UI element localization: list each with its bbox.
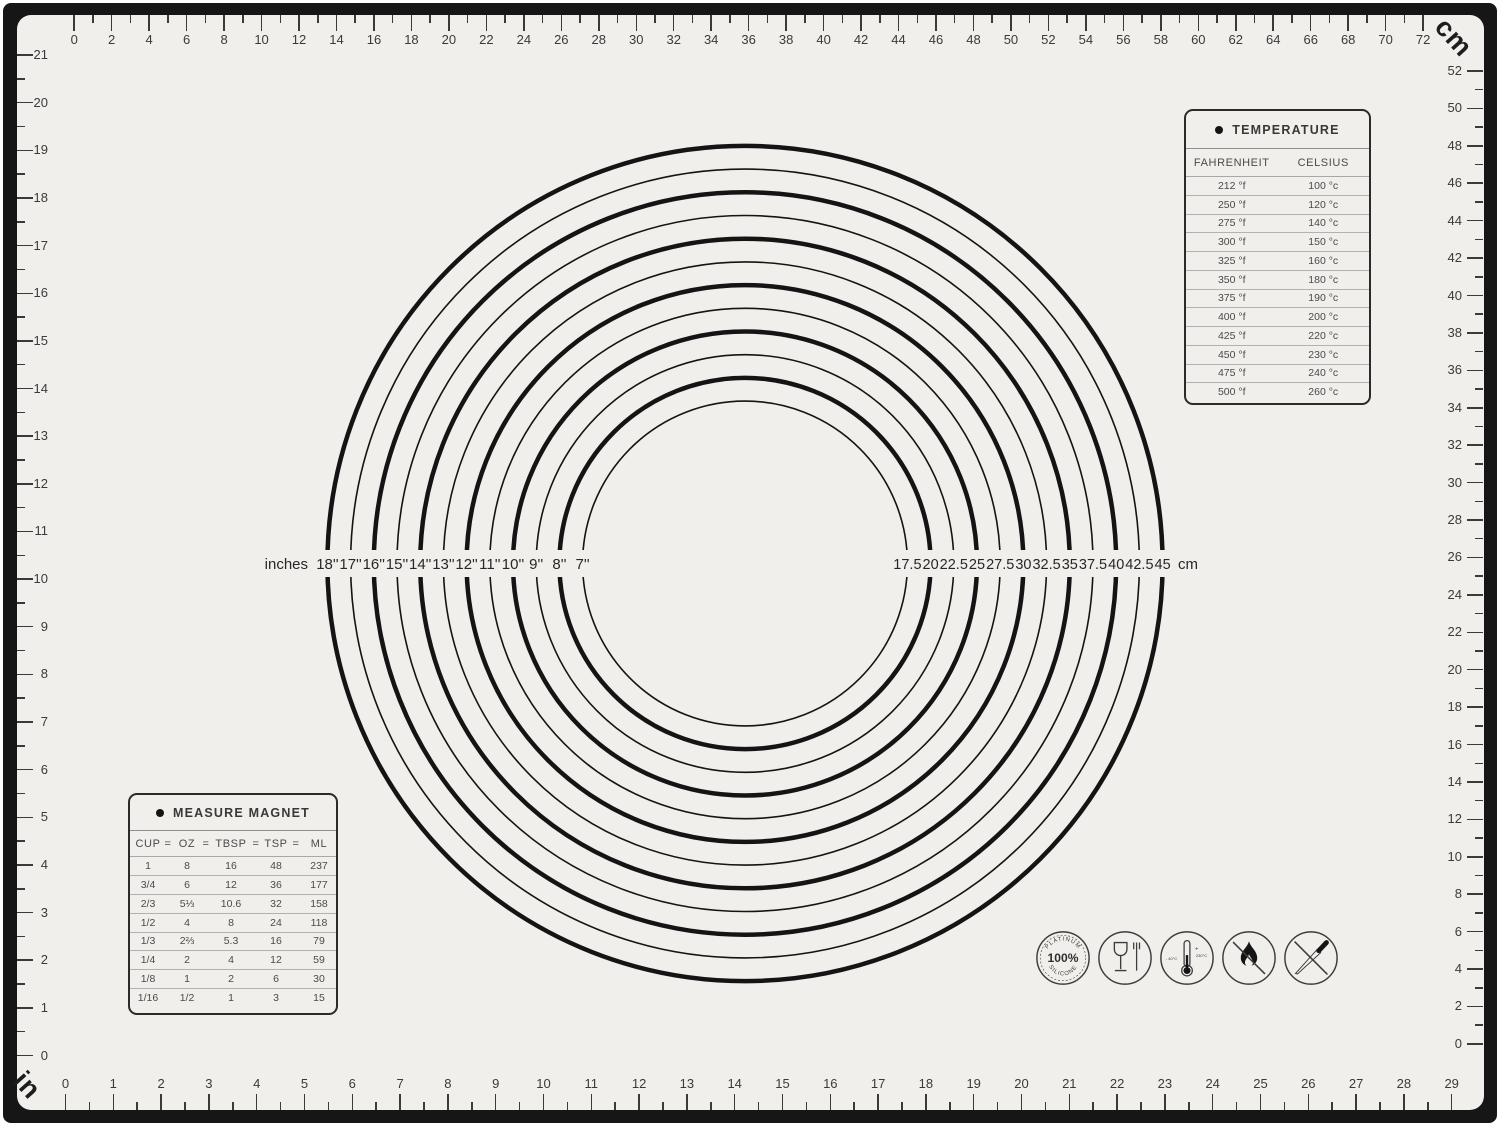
ruler-tick bbox=[561, 15, 563, 31]
ruler-tick bbox=[89, 1102, 91, 1110]
ruler-tick bbox=[17, 983, 25, 985]
ruler-label: 16 bbox=[1432, 738, 1462, 752]
ruler-label: 8 bbox=[1432, 887, 1462, 901]
ruler-tick bbox=[399, 1094, 401, 1110]
measure-cell: 3/4 bbox=[132, 879, 164, 891]
temperature-cell: 375 °f bbox=[1186, 292, 1278, 304]
ruler-tick bbox=[1475, 501, 1483, 503]
ring-inch-label: 11'' bbox=[479, 556, 500, 573]
ruler-tick bbox=[17, 793, 25, 795]
ring-inch-label: 15'' bbox=[386, 556, 409, 573]
ruler-tick bbox=[598, 15, 600, 31]
ruler-label: 8 bbox=[210, 33, 238, 47]
measure-cell: 2⅔ bbox=[172, 935, 202, 947]
ring-inch-label: 13'' bbox=[432, 556, 455, 573]
temperature-row: 250 °f120 °c bbox=[1186, 196, 1369, 215]
ruler-tick bbox=[1475, 875, 1483, 877]
ruler-tick bbox=[1235, 15, 1237, 31]
measure-cell: 1/8 bbox=[132, 973, 164, 985]
ruler-tick bbox=[1160, 15, 1162, 31]
measure-cell: 1/4 bbox=[132, 954, 164, 966]
measure-row: 2/35⅓10.632158 bbox=[130, 895, 336, 914]
ruler-tick bbox=[1475, 613, 1483, 615]
ruler-tick bbox=[336, 15, 338, 31]
ruler-label: 18 bbox=[397, 33, 425, 47]
ruler-tick bbox=[1475, 351, 1483, 353]
ruler-label: 12 bbox=[625, 1077, 653, 1091]
ruler-tick bbox=[504, 15, 506, 23]
ruler-tick bbox=[1104, 15, 1106, 23]
svg-text:+: + bbox=[1195, 946, 1199, 952]
measure-cell: 12 bbox=[210, 879, 252, 891]
temperature-cell: 120 °c bbox=[1278, 199, 1370, 211]
ruler-tick bbox=[543, 1094, 545, 1110]
ruler-label: 38 bbox=[772, 33, 800, 47]
ruler-tick bbox=[280, 15, 282, 23]
ruler-tick bbox=[519, 1102, 521, 1110]
certification-icons: PLATINUM 100% SILICONE - 40°C + 230°C bbox=[1034, 929, 1340, 987]
ruler-tick bbox=[785, 15, 787, 31]
ruler-tick bbox=[17, 888, 25, 890]
ruler-tick bbox=[232, 1102, 234, 1110]
ruler-tick bbox=[17, 840, 25, 842]
ruler-tick bbox=[17, 269, 25, 271]
ruler-tick bbox=[1467, 893, 1483, 895]
ruler-label: 70 bbox=[1372, 33, 1400, 47]
measure-cell: 15 bbox=[300, 992, 338, 1004]
ruler-tick bbox=[1116, 1094, 1118, 1110]
ruler-label: 8 bbox=[434, 1077, 462, 1091]
ruler-tick bbox=[1366, 15, 1368, 23]
ruler-label: 40 bbox=[810, 33, 838, 47]
ruler-label: 64 bbox=[1259, 33, 1287, 47]
ruler-label: 12 bbox=[285, 33, 313, 47]
temperature-row: 350 °f180 °c bbox=[1186, 271, 1369, 290]
ring-inch-label: 9'' bbox=[529, 556, 543, 573]
ruler-label: 20 bbox=[20, 96, 48, 110]
ruler-tick bbox=[925, 1094, 927, 1110]
temperature-cell: 500 °f bbox=[1186, 386, 1278, 398]
ruler-label: 52 bbox=[1432, 64, 1462, 78]
ruler-tick bbox=[317, 15, 319, 23]
ruler-label: 10 bbox=[530, 1077, 558, 1091]
ruler-tick bbox=[1467, 632, 1483, 634]
measure-row: 1/4241259 bbox=[130, 951, 336, 970]
ruler-tick bbox=[17, 173, 25, 175]
measure-row: 3/461236177 bbox=[130, 876, 336, 895]
measure-cell: 2 bbox=[172, 954, 202, 966]
no-open-flame-icon bbox=[1220, 929, 1278, 987]
ruler-tick bbox=[1475, 950, 1483, 952]
measure-cell: 48 bbox=[260, 860, 292, 872]
ruler-tick bbox=[1467, 407, 1483, 409]
svg-text:230°C: 230°C bbox=[1196, 953, 1207, 958]
ring-inch-label: 17'' bbox=[339, 556, 362, 573]
ruler-tick bbox=[748, 15, 750, 31]
temperature-cell: 230 °c bbox=[1278, 349, 1370, 361]
measure-column-header: OZ bbox=[172, 838, 202, 850]
ruler-tick bbox=[1085, 15, 1087, 31]
ruler-label: 22 bbox=[472, 33, 500, 47]
ruler-label: 18 bbox=[912, 1077, 940, 1091]
ruler-tick bbox=[1467, 669, 1483, 671]
ruler-tick bbox=[710, 15, 712, 31]
ruler-tick bbox=[782, 1094, 784, 1110]
temperature-table: TEMPERATURE FAHRENHEITCELSIUS 212 °f100 … bbox=[1184, 109, 1371, 405]
ruler-tick bbox=[1467, 931, 1483, 933]
ruler-label: 44 bbox=[885, 33, 913, 47]
ruler-label: 6 bbox=[173, 33, 201, 47]
measure-cell: 36 bbox=[260, 879, 292, 891]
ruler-tick bbox=[17, 650, 25, 652]
measure-column-header: = bbox=[202, 838, 210, 850]
ruler-label: 0 bbox=[60, 33, 88, 47]
ruler-label: 14 bbox=[721, 1077, 749, 1091]
ruler-label: 52 bbox=[1034, 33, 1062, 47]
ruler-tick bbox=[17, 221, 25, 223]
ruler-tick bbox=[17, 555, 25, 557]
ruler-tick bbox=[1021, 1094, 1023, 1110]
ruler-tick bbox=[1467, 370, 1483, 372]
ruler-label: 15 bbox=[20, 334, 48, 348]
ruler-label: 38 bbox=[1432, 326, 1462, 340]
ruler-tick bbox=[17, 412, 25, 414]
ruler-tick bbox=[148, 15, 150, 31]
temperature-cell: 250 °f bbox=[1186, 199, 1278, 211]
ruler-tick bbox=[654, 15, 656, 23]
ruler-label: 68 bbox=[1334, 33, 1362, 47]
ring-inch-label: 18'' bbox=[316, 556, 339, 573]
measure-row: 1/812630 bbox=[130, 970, 336, 989]
measure-row: 1/161/21315 bbox=[130, 989, 336, 1007]
ruler-tick bbox=[1291, 15, 1293, 23]
ruler-label: 26 bbox=[547, 33, 575, 47]
ruler-tick bbox=[1236, 1102, 1238, 1110]
ruler-tick bbox=[17, 602, 25, 604]
baking-mat-image: inches18''4517''42.516''4015''37.514''35… bbox=[0, 0, 1500, 1126]
ring-cm-label: 42.5 bbox=[1125, 557, 1153, 573]
measure-cell: 24 bbox=[260, 917, 292, 929]
temperature-cell: 425 °f bbox=[1186, 330, 1278, 342]
measure-cell: 6 bbox=[172, 879, 202, 891]
ruler-tick bbox=[1475, 837, 1483, 839]
ruler-tick bbox=[567, 1102, 569, 1110]
measure-cell: 1 bbox=[172, 973, 202, 985]
ruler-label: 48 bbox=[959, 33, 987, 47]
ruler-tick bbox=[17, 507, 25, 509]
measure-cell: 6 bbox=[260, 973, 292, 985]
ruler-label: 25 bbox=[1247, 1077, 1275, 1091]
ruler-label: 16 bbox=[360, 33, 388, 47]
ruler-tick bbox=[823, 15, 825, 31]
measure-cell: 59 bbox=[300, 954, 338, 966]
ruler-tick bbox=[1475, 538, 1483, 540]
ruler-tick bbox=[1467, 444, 1483, 446]
ruler-tick bbox=[1212, 1094, 1214, 1110]
ruler-tick bbox=[1467, 295, 1483, 297]
ruler-tick bbox=[1467, 519, 1483, 521]
ruler-label: 4 bbox=[135, 33, 163, 47]
ruler-tick bbox=[1164, 1094, 1166, 1110]
ruler-tick bbox=[184, 1102, 186, 1110]
temperature-row: 425 °f220 °c bbox=[1186, 327, 1369, 346]
ruler-tick bbox=[1092, 1102, 1094, 1110]
ruler-label: 12 bbox=[20, 477, 48, 491]
measure-column-header: ML bbox=[300, 838, 338, 850]
measure-cell: 1 bbox=[132, 860, 164, 872]
ruler-label: 28 bbox=[585, 33, 613, 47]
ruler-tick bbox=[879, 15, 881, 23]
temperature-range-icon: - 40°C + 230°C bbox=[1158, 929, 1216, 987]
ruler-tick bbox=[734, 1094, 736, 1110]
svg-text:- 40°C: - 40°C bbox=[1166, 956, 1178, 961]
ruler-tick bbox=[1427, 1102, 1429, 1110]
ruler-label: 20 bbox=[435, 33, 463, 47]
ruler-tick bbox=[710, 1102, 712, 1110]
ruler-tick bbox=[579, 15, 581, 23]
ruler-label: 6 bbox=[338, 1077, 366, 1091]
ruler-label: 10 bbox=[248, 33, 276, 47]
ruler-label: 46 bbox=[1432, 176, 1462, 190]
ruler-tick bbox=[1140, 1102, 1142, 1110]
ring-cm-label: 45 bbox=[1155, 557, 1171, 573]
ruler-label: 22 bbox=[1103, 1077, 1131, 1091]
ruler-tick bbox=[1475, 763, 1483, 765]
measure-cell: 10.6 bbox=[210, 898, 252, 910]
measure-cell: 5.3 bbox=[210, 935, 252, 947]
ruler-tick bbox=[636, 15, 638, 31]
svg-text:PLATINUM: PLATINUM bbox=[1044, 937, 1081, 951]
ruler-tick bbox=[447, 1094, 449, 1110]
ring-inch-label: 16'' bbox=[363, 556, 386, 573]
ruler-tick bbox=[1403, 1094, 1405, 1110]
ruler-tick bbox=[1467, 557, 1483, 559]
ruler-tick bbox=[328, 1102, 330, 1110]
ruler-label: 18 bbox=[1432, 700, 1462, 714]
ruler-tick bbox=[448, 15, 450, 31]
ruler-tick bbox=[208, 1094, 210, 1110]
ruler-tick bbox=[758, 1102, 760, 1110]
ruler-label: 32 bbox=[1432, 438, 1462, 452]
temperature-cell: 400 °f bbox=[1186, 311, 1278, 323]
ruler-tick bbox=[186, 15, 188, 31]
ruler-label: 2 bbox=[1432, 999, 1462, 1013]
ruler-tick bbox=[111, 15, 113, 31]
ruler-tick bbox=[392, 15, 394, 23]
ruler-tick bbox=[729, 15, 731, 23]
temperature-column-header: CELSIUS bbox=[1278, 157, 1370, 169]
ruler-label: 22 bbox=[1432, 625, 1462, 639]
ring-inch-label: 8'' bbox=[552, 556, 566, 573]
temperature-row: 325 °f160 °c bbox=[1186, 252, 1369, 271]
measure-cell: 237 bbox=[300, 860, 338, 872]
temperature-row: 300 °f150 °c bbox=[1186, 233, 1369, 252]
ruler-tick bbox=[92, 15, 94, 23]
ruler-tick bbox=[411, 15, 413, 31]
ruler-tick bbox=[673, 15, 675, 31]
ruler-tick bbox=[1422, 15, 1424, 31]
measure-cell: 2 bbox=[210, 973, 252, 985]
temperature-cell: 180 °c bbox=[1278, 274, 1370, 286]
ruler-tick bbox=[486, 15, 488, 31]
ruler-tick bbox=[1141, 15, 1143, 23]
measure-column-header: = bbox=[164, 838, 172, 850]
ruler-tick bbox=[767, 15, 769, 23]
ruler-tick bbox=[1467, 482, 1483, 484]
ruler-tick bbox=[113, 1094, 115, 1110]
ruler-label: 0 bbox=[1432, 1037, 1462, 1051]
ruler-tick bbox=[1475, 987, 1483, 989]
ruler-label: 54 bbox=[1072, 33, 1100, 47]
ruler-tick bbox=[997, 1102, 999, 1110]
ruler-label: 30 bbox=[622, 33, 650, 47]
ruler-tick bbox=[261, 15, 263, 31]
bullet-icon bbox=[1215, 126, 1223, 134]
ruler-tick bbox=[1179, 15, 1181, 23]
ruler-tick bbox=[686, 1094, 688, 1110]
measure-cell: 158 bbox=[300, 898, 338, 910]
knife-blade bbox=[1296, 949, 1321, 974]
measure-row: 181648237 bbox=[130, 857, 336, 876]
ruler-tick bbox=[1284, 1102, 1286, 1110]
ruler-tick bbox=[860, 15, 862, 31]
ruler-tick bbox=[375, 1102, 377, 1110]
ruler-tick bbox=[1188, 1102, 1190, 1110]
measure-rows: 1816482373/4612361772/35⅓10.6321581/2482… bbox=[130, 857, 336, 1007]
ruler-label: 58 bbox=[1147, 33, 1175, 47]
ruler-label: 24 bbox=[1199, 1077, 1227, 1091]
ruler-label: 23 bbox=[1151, 1077, 1179, 1091]
temperature-column-header: FAHRENHEIT bbox=[1186, 157, 1278, 169]
ruler-tick bbox=[1467, 706, 1483, 708]
measure-column-header: TSP bbox=[260, 838, 292, 850]
measure-cell: 1/2 bbox=[132, 917, 164, 929]
ruler-label: 14 bbox=[20, 382, 48, 396]
knife-handle bbox=[1319, 943, 1327, 951]
temperature-column-headers: FAHRENHEITCELSIUS bbox=[1186, 149, 1369, 177]
ruler-tick bbox=[853, 1102, 855, 1110]
ruler-tick bbox=[1467, 856, 1483, 858]
ruler-label: 6 bbox=[20, 763, 48, 777]
ruler-tick bbox=[1475, 201, 1483, 203]
temperature-cell: 260 °c bbox=[1278, 386, 1370, 398]
svg-text:SILICONE: SILICONE bbox=[1047, 964, 1079, 977]
ruler-tick bbox=[256, 1094, 258, 1110]
ruler-label: 4 bbox=[20, 858, 48, 872]
ruler-tick bbox=[17, 316, 25, 318]
ruler-tick bbox=[1272, 15, 1274, 31]
ruler-tick bbox=[804, 15, 806, 23]
ruler-label: 7 bbox=[20, 715, 48, 729]
ruler-label: 32 bbox=[660, 33, 688, 47]
ruler-tick bbox=[1329, 15, 1331, 23]
ruler-tick bbox=[373, 15, 375, 31]
ruler-tick bbox=[638, 1094, 640, 1110]
ruler-tick bbox=[423, 1102, 425, 1110]
ruler-tick bbox=[614, 1102, 616, 1110]
measure-title-text: MEASURE MAGNET bbox=[173, 806, 310, 820]
ruler-tick bbox=[542, 15, 544, 23]
ruler-tick bbox=[167, 15, 169, 23]
food-safe-icon bbox=[1096, 929, 1154, 987]
ruler-tick bbox=[973, 15, 975, 31]
ruler-tick bbox=[1467, 145, 1483, 147]
ruler-tick bbox=[991, 15, 993, 23]
ring-cm-label: 25 bbox=[969, 557, 985, 573]
ruler-tick bbox=[917, 15, 919, 23]
ruler-tick bbox=[17, 364, 25, 366]
ruler-label: 5 bbox=[20, 810, 48, 824]
ruler-label: 40 bbox=[1432, 289, 1462, 303]
ruler-tick bbox=[973, 1094, 975, 1110]
ruler-label: 11 bbox=[20, 524, 48, 538]
ruler-tick bbox=[1355, 1094, 1357, 1110]
temperature-row: 475 °f240 °c bbox=[1186, 365, 1369, 384]
measure-cell: 8 bbox=[172, 860, 202, 872]
ruler-label: 21 bbox=[20, 48, 48, 62]
measure-cell: 1 bbox=[210, 992, 252, 1004]
ruler-tick bbox=[1475, 126, 1483, 128]
ruler-tick bbox=[1347, 15, 1349, 31]
ruler-tick bbox=[298, 15, 300, 31]
ruler-tick bbox=[1404, 15, 1406, 23]
measure-column-header: CUP bbox=[132, 838, 164, 850]
ruler-label: 2 bbox=[20, 953, 48, 967]
ruler-tick bbox=[1216, 15, 1218, 23]
temperature-cell: 300 °f bbox=[1186, 236, 1278, 248]
ruler-tick bbox=[806, 1102, 808, 1110]
no-knife-icon bbox=[1282, 929, 1340, 987]
platinum-silicone-icon: PLATINUM 100% SILICONE bbox=[1034, 929, 1092, 987]
ruler-label: 14 bbox=[322, 33, 350, 47]
temperature-cell: 220 °c bbox=[1278, 330, 1370, 342]
ruler-tick bbox=[1066, 15, 1068, 23]
ruler-tick bbox=[17, 459, 25, 461]
ruler-tick bbox=[17, 1031, 25, 1033]
temperature-row: 375 °f190 °c bbox=[1186, 290, 1369, 309]
ruler-label: 19 bbox=[20, 143, 48, 157]
ruler-tick bbox=[842, 15, 844, 23]
ruler-tick bbox=[1467, 220, 1483, 222]
ruler-tick bbox=[280, 1102, 282, 1110]
ring-inch-label: 12'' bbox=[455, 556, 478, 573]
ring-cm-label: 22.5 bbox=[940, 557, 968, 573]
ruler-tick bbox=[136, 1102, 138, 1110]
measure-cell: 1/3 bbox=[132, 935, 164, 947]
ruler-tick bbox=[223, 15, 225, 31]
measure-magnet-title: MEASURE MAGNET bbox=[130, 795, 336, 831]
temperature-row: 500 °f260 °c bbox=[1186, 383, 1369, 401]
ruler-label: 66 bbox=[1297, 33, 1325, 47]
ruler-tick bbox=[523, 15, 525, 31]
ring-unit-inches-label: inches bbox=[265, 556, 308, 573]
ruler-label: 4 bbox=[1432, 962, 1462, 976]
ruler-tick bbox=[1385, 15, 1387, 31]
temperature-cell: 275 °f bbox=[1186, 217, 1278, 229]
ruler-label: 50 bbox=[1432, 101, 1462, 115]
measure-cell: 8 bbox=[210, 917, 252, 929]
ruler-label: 20 bbox=[1008, 1077, 1036, 1091]
ruler-label: 60 bbox=[1184, 33, 1212, 47]
ruler-tick bbox=[1029, 15, 1031, 23]
ruler-tick bbox=[898, 15, 900, 31]
ruler-label: 9 bbox=[20, 620, 48, 634]
ruler-label: 44 bbox=[1432, 214, 1462, 228]
ruler-tick bbox=[1467, 1006, 1483, 1008]
temperature-cell: 350 °f bbox=[1186, 274, 1278, 286]
measure-cell: 16 bbox=[260, 935, 292, 947]
ruler-label: 62 bbox=[1222, 33, 1250, 47]
